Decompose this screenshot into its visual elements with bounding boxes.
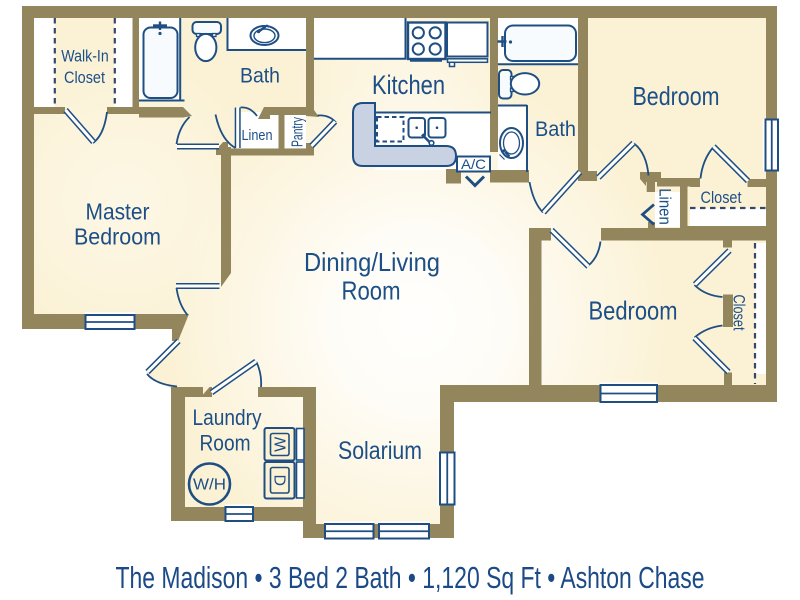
svg-text:Kitchen: Kitchen [372, 70, 445, 100]
svg-text:D: D [270, 475, 287, 487]
svg-text:Pantry: Pantry [290, 117, 307, 147]
svg-text:A/C: A/C [461, 156, 486, 172]
svg-text:Closet: Closet [730, 295, 749, 331]
svg-text:Bedroom: Bedroom [589, 296, 678, 326]
svg-text:Bath: Bath [535, 118, 576, 141]
svg-text:Solarium: Solarium [338, 437, 422, 465]
svg-text:Linen: Linen [242, 127, 273, 144]
svg-text:W/H: W/H [193, 477, 226, 494]
svg-text:The Madison • 3 Bed 2 Bath • 1: The Madison • 3 Bed 2 Bath • 1,120 Sq Ft… [116, 560, 705, 595]
svg-text:Room: Room [342, 276, 401, 306]
svg-text:Closet: Closet [701, 189, 742, 207]
svg-text:W: W [273, 436, 290, 452]
svg-text:Bedroom: Bedroom [633, 81, 720, 111]
svg-text:Master: Master [86, 199, 150, 225]
svg-text:Walk-In: Walk-In [61, 47, 109, 66]
svg-text:Bath: Bath [240, 65, 280, 88]
svg-text:Linen: Linen [656, 188, 675, 225]
svg-text:Closet: Closet [64, 68, 105, 87]
svg-text:Laundry: Laundry [193, 405, 262, 430]
svg-text:Dining/Living: Dining/Living [304, 247, 440, 277]
svg-text:Bedroom: Bedroom [74, 224, 161, 250]
svg-text:Room: Room [200, 431, 251, 456]
